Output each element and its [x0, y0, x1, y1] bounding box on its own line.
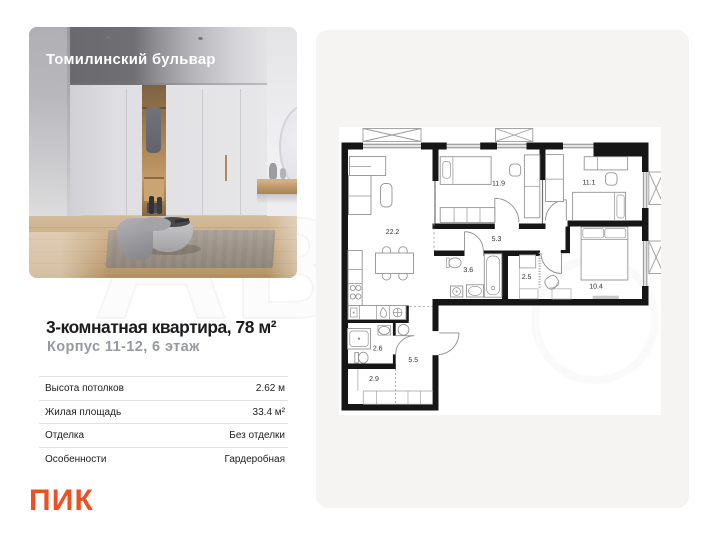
- svg-text:11.1: 11.1: [582, 180, 595, 187]
- svg-text:2.5: 2.5: [522, 274, 532, 281]
- svg-text:2.9: 2.9: [369, 376, 379, 383]
- svg-text:10.4: 10.4: [589, 284, 603, 291]
- svg-text:22.2: 22.2: [386, 229, 400, 236]
- svg-text:5.5: 5.5: [408, 357, 418, 364]
- svg-text:3.6: 3.6: [463, 267, 473, 274]
- svg-text:5.3: 5.3: [492, 236, 502, 243]
- svg-text:2.6: 2.6: [373, 345, 383, 352]
- svg-text:11.9: 11.9: [492, 181, 505, 188]
